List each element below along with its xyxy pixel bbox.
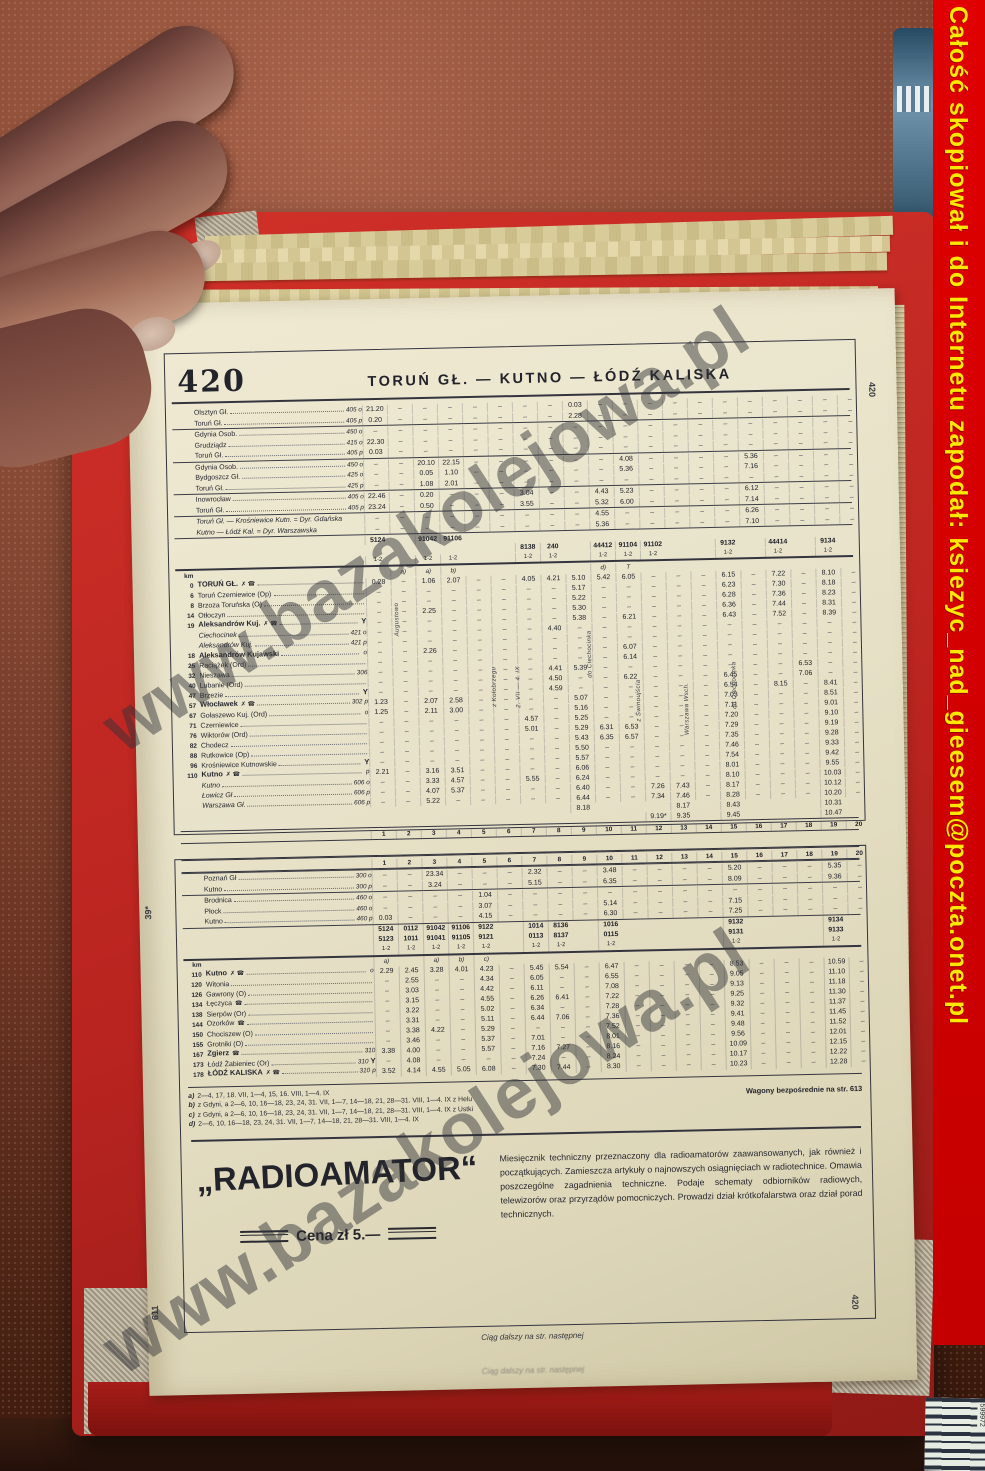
time-cell: – [497, 890, 522, 900]
time-cell: – [422, 892, 447, 902]
time-cell: – [687, 430, 712, 440]
time-cell: – [416, 616, 441, 626]
time-cell: – [391, 587, 416, 597]
time-cell: 7.43 [670, 781, 695, 791]
time-cell: – [692, 670, 717, 680]
time-cell: – [769, 739, 794, 749]
time-cell: – [545, 773, 570, 783]
station-name: Chociszew (O) [207, 1030, 253, 1040]
time-cell: – [697, 907, 722, 917]
time-cell: – [514, 511, 539, 521]
time-cell: – [424, 976, 449, 986]
time-cell: – [650, 1011, 675, 1021]
time-cell: – [575, 1032, 600, 1042]
station-name: Ciechocinek [199, 630, 237, 640]
time-cell: – [491, 605, 516, 615]
time-cell: 3.52 [376, 1067, 401, 1077]
time-cell: – [750, 1029, 775, 1039]
time-cell: 1-2 [373, 945, 398, 955]
time-cell: – [499, 984, 524, 994]
time-cell: – [838, 438, 863, 448]
time-cell: 9.33 [819, 738, 844, 748]
time-cell: – [744, 739, 769, 749]
time-cell: – [638, 442, 663, 452]
time-cell: – [576, 1062, 601, 1072]
time-cell: 7.01 [525, 1033, 550, 1043]
time-cell: – [537, 423, 562, 433]
time-cell: – [370, 797, 395, 807]
time-cell: – [545, 783, 570, 793]
station-cell [201, 839, 371, 843]
route-ref: 302 [352, 697, 363, 707]
time-cell: 0112 [398, 924, 423, 934]
time-cell: 9122 [473, 923, 498, 933]
time-cell: – [538, 456, 563, 466]
time-cell: – [372, 893, 397, 903]
time-cell: – [450, 1035, 475, 1045]
time-cell: – [439, 501, 464, 511]
time-cell: – [489, 511, 514, 521]
time-cell: – [499, 964, 524, 974]
time-cell: – [795, 778, 820, 788]
time-cell: – [839, 514, 864, 524]
time-cell: 10 [596, 824, 621, 834]
time-cell: – [522, 900, 547, 910]
time-cell: – [794, 728, 819, 738]
km-cell: 19 [176, 621, 196, 631]
station-name: Bydgoszcz Gł. [195, 473, 240, 483]
time-cell: – [374, 1007, 399, 1017]
time-cell: 7.36 [766, 589, 791, 599]
time-cell: 14 [696, 822, 721, 832]
time-cell: – [693, 680, 718, 690]
time-cell: – [787, 428, 812, 438]
time-cell: – [700, 1040, 725, 1050]
time-cell: – [747, 873, 772, 883]
time-cell: – [787, 418, 812, 428]
time-cell: – [712, 408, 737, 418]
time-cell: 6.24 [570, 773, 595, 783]
time-cell: – [591, 602, 616, 612]
time-cell: 8.23 [816, 588, 841, 598]
time-cell: 1-2 [398, 944, 423, 954]
time-cell: – [449, 975, 474, 985]
time-cell: 12.28 [826, 1057, 851, 1067]
time-cell: 4.55 [474, 995, 499, 1005]
time-cell: 3.04 [514, 489, 539, 499]
time-cell: – [587, 433, 612, 443]
time-cell: – [542, 644, 567, 654]
time-cell: – [519, 764, 544, 774]
time-cell: – [412, 426, 437, 436]
time-cell: – [649, 1001, 674, 1011]
time-cell: 5.36 [738, 451, 763, 461]
time-cell: – [375, 1017, 400, 1027]
time-cell: – [714, 495, 739, 505]
km-cell: 8 [176, 601, 196, 611]
time-cell: 5.30 [566, 603, 591, 613]
time-cell: – [542, 634, 567, 644]
time-cell: – [487, 402, 512, 412]
time-cell: – [516, 624, 541, 634]
time-cell: – [697, 874, 722, 884]
time-cell: – [666, 611, 691, 621]
station-name: Kutno [205, 917, 223, 927]
time-cell: – [675, 1020, 700, 1030]
time-cell: – [442, 646, 467, 656]
time-cell: – [669, 751, 694, 761]
time-cell: – [666, 581, 691, 591]
time-cell: – [612, 432, 637, 442]
time-cell: 6.28 [716, 590, 741, 600]
time-cell: – [817, 658, 842, 668]
time-cell: – [519, 744, 544, 754]
station-name: Grudziądz [195, 441, 227, 451]
time-cell: – [500, 1024, 525, 1034]
dotted-leader [240, 465, 345, 468]
time-cell: 0.28 [365, 577, 390, 587]
time-cell: 3 [421, 857, 446, 867]
time-cell: – [743, 689, 768, 699]
time-cell: 1.06 [415, 576, 440, 586]
time-cell: – [388, 480, 413, 490]
time-cell: – [742, 629, 767, 639]
time-cell: – [549, 973, 574, 983]
time-cell: – [444, 746, 469, 756]
time-cell: 6.14 [617, 652, 642, 662]
km-cell: 76 [179, 731, 199, 741]
time-cell: – [525, 1023, 550, 1033]
time-cell: – [843, 677, 868, 687]
ad-price-row: Cena zł 5.— [193, 1223, 483, 1246]
time-cell: – [771, 862, 796, 872]
time-cell: 91042 [415, 534, 440, 544]
time-cell: – [574, 992, 599, 1002]
time-cell: 3.16 [419, 766, 444, 776]
time-cell: 18 [796, 820, 821, 830]
time-cell: – [800, 1008, 825, 1018]
time-cell: – [850, 1007, 875, 1017]
time-cell: – [625, 1021, 650, 1031]
time-cell: – [699, 970, 724, 980]
barcode-label: 599972 [924, 1397, 985, 1471]
time-cell: 12 [646, 852, 671, 862]
time-cell: 7.16 [525, 1043, 550, 1053]
time-cell: – [464, 512, 489, 522]
time-cell: – [516, 584, 541, 594]
time-cell: 5.07 [568, 693, 593, 703]
time-cell: – [388, 447, 413, 457]
time-cell: – [516, 604, 541, 614]
dotted-leader [225, 454, 345, 458]
time-cell: – [470, 775, 495, 785]
time-cell: 1.25 [368, 707, 393, 717]
time-cell: – [392, 667, 417, 677]
time-cell: – [550, 1053, 575, 1063]
time-cell: – [547, 867, 572, 877]
ad-price: Cena zł 5.— [296, 1226, 381, 1245]
time-cell: – [499, 1004, 524, 1014]
time-cell: 1-2 [723, 937, 748, 947]
time-cell: 7.30 [766, 579, 791, 589]
time-cell: – [788, 450, 813, 460]
time-cell: – [394, 747, 419, 757]
time-cell: – [692, 640, 717, 650]
time-cell: – [822, 904, 847, 914]
time-cell: – [437, 425, 462, 435]
time-cell: 9.32 [724, 999, 749, 1009]
time-cell: – [641, 591, 666, 601]
time-cell: 7.22 [765, 569, 790, 579]
time-cell: – [622, 865, 647, 875]
time-cell: – [519, 734, 544, 744]
time-cell: – [543, 714, 568, 724]
time-cell: – [593, 692, 618, 702]
time-cell: – [775, 1028, 800, 1038]
time-cell: – [419, 756, 444, 766]
stations-block: 110Kutno✗ ☎o2.292.453.284.014.23–5.455.5… [184, 956, 864, 1080]
time-cell: – [462, 425, 487, 435]
time-cell: – [847, 893, 872, 903]
time-cell: – [625, 1011, 650, 1021]
time-cell: – [762, 407, 787, 417]
time-cell: 6 [496, 856, 521, 866]
time-cell: – [367, 667, 392, 677]
time-cell: T [615, 562, 640, 572]
time-cell: 5.20 [722, 863, 747, 873]
time-cell: – [749, 969, 774, 979]
time-cell: 20 [846, 848, 871, 858]
time-cell: – [774, 978, 799, 988]
dotted-leader [225, 920, 355, 924]
time-cell: 2.07 [418, 696, 443, 706]
time-cell: – [814, 515, 839, 525]
time-cell: – [789, 483, 814, 493]
time-cell: – [775, 1048, 800, 1058]
time-cell: – [622, 908, 647, 918]
vertical-note: Augustowo [393, 603, 401, 637]
time-cell: – [766, 619, 791, 629]
time-cell: 6.07 [617, 642, 642, 652]
time-cell: 4 [446, 828, 471, 838]
time-cell: – [645, 771, 670, 781]
time-cell: – [397, 881, 422, 891]
time-cell: – [417, 666, 442, 676]
time-cell: – [442, 636, 467, 646]
time-cell: – [737, 397, 762, 407]
time-cell: – [692, 660, 717, 670]
time-cell: – [749, 989, 774, 999]
time-cell: – [547, 877, 572, 887]
time-cell: – [669, 761, 694, 771]
dotted-leader [231, 743, 367, 747]
time-cell: 4.41 [542, 664, 567, 674]
time-cell: – [850, 1027, 875, 1037]
time-cell: 5 [471, 827, 496, 837]
time-cell: – [837, 427, 862, 437]
time-cell: – [772, 873, 797, 883]
station-name: Aleksandrów Kuj. [198, 618, 260, 629]
time-cell: – [663, 474, 688, 484]
time-cell: – [501, 1064, 526, 1074]
time-cell: – [450, 1045, 475, 1055]
time-cell: – [699, 1000, 724, 1010]
time-cell: 7.15 [722, 896, 747, 906]
station-name: Brodnica [204, 896, 232, 906]
time-cell: – [822, 894, 847, 904]
time-cell: – [613, 442, 638, 452]
time-cell: – [714, 484, 739, 494]
time-cell: – [812, 395, 837, 405]
time-cell: – [541, 584, 566, 594]
time-cell: 11.52 [825, 1017, 850, 1027]
time-cell: 6.08 [476, 1064, 501, 1074]
time-cell: – [595, 782, 620, 792]
time-cell: – [516, 614, 541, 624]
time-cell: 9133 [823, 925, 848, 935]
time-cell: – [437, 403, 462, 413]
time-cell: – [762, 418, 787, 428]
time-cell: – [389, 502, 414, 512]
station-symbols: ✗ ☎ [230, 970, 244, 980]
time-cell: – [838, 460, 863, 470]
time-cell: 5.57 [569, 753, 594, 763]
time-cell: – [741, 619, 766, 629]
route-ref: 405 o [346, 405, 362, 415]
time-cell: – [366, 617, 391, 627]
time-cell: – [817, 638, 842, 648]
time-cell: – [489, 522, 514, 532]
time-cell: – [425, 1036, 450, 1046]
time-cell: – [424, 1006, 449, 1016]
time-cell: – [813, 471, 838, 481]
dotted-leader [281, 653, 359, 656]
time-cell: 2.26 [417, 646, 442, 656]
time-cell: – [644, 741, 669, 751]
stations-block: 0TORUŃ GŁ.✗ ☎0.28–1.062.07––4.054.215.10… [175, 567, 858, 831]
station-name: Toruń Gł. [194, 419, 223, 429]
time-cell: – [772, 895, 797, 905]
time-cell: – [363, 480, 388, 490]
time-cell: – [747, 885, 772, 895]
banner-text: Całość skopiował i do Internetu zapodał:… [933, 0, 972, 1025]
time-cell: 17 [771, 850, 796, 860]
time-cell: – [418, 716, 443, 726]
time-cell: – [592, 642, 617, 652]
route-ref: 421 o [350, 628, 366, 638]
time-cell: 6.30 [597, 909, 622, 919]
time-cell: – [588, 476, 613, 486]
time-cell: – [441, 596, 466, 606]
time-cell: 9132 [723, 917, 748, 927]
time-cell: – [664, 507, 689, 517]
time-cell: – [644, 751, 669, 761]
time-cell: – [770, 779, 795, 789]
time-cell: 23.34 [422, 870, 447, 880]
time-cell: – [647, 897, 672, 907]
time-cell: – [374, 997, 399, 1007]
time-cell: – [839, 482, 864, 492]
time-cell: 3.15 [399, 996, 424, 1006]
time-cell: – [614, 519, 639, 529]
station-name: Toruń Gł. [195, 451, 224, 461]
continuation-note-blurred: Ciąg dalszy na str. następnej [149, 1358, 917, 1383]
time-cell: – [497, 911, 522, 921]
km-cell: km [175, 571, 195, 581]
time-cell: – [516, 594, 541, 604]
station-symbols: ✗ ☎ [263, 620, 277, 630]
time-cell: – [591, 622, 616, 632]
time-cell: – [463, 446, 488, 456]
time-cell: 6.57 [619, 732, 644, 742]
time-cell: 20.10 [413, 458, 438, 468]
time-cell: – [514, 521, 539, 531]
time-cell: – [369, 727, 394, 737]
vertical-note: z Świnoujścia [635, 679, 643, 721]
time-cell: – [520, 784, 545, 794]
time-cell: – [813, 450, 838, 460]
dotted-leader [273, 593, 363, 596]
time-cell: – [663, 453, 688, 463]
page-number-611: 611 [150, 1305, 160, 1320]
time-cell: 4.00 [400, 1046, 425, 1056]
time-cell: – [369, 747, 394, 757]
time-cell: – [797, 894, 822, 904]
time-cell: – [591, 582, 616, 592]
time-cell: – [693, 700, 718, 710]
time-cell: – [444, 756, 469, 766]
time-cell: 12 [646, 823, 671, 833]
time-cell: – [791, 578, 816, 588]
time-cell: – [537, 434, 562, 444]
time-cell: 10 [596, 853, 621, 863]
time-cell: 2.01 [438, 479, 463, 489]
time-cell: – [616, 592, 641, 602]
time-cell: – [849, 987, 874, 997]
time-cell: 1-2 [473, 943, 498, 953]
time-cell: – [562, 433, 587, 443]
time-cell: – [797, 905, 822, 915]
time-cell: – [798, 958, 823, 968]
time-cell: – [794, 748, 819, 758]
background-object [893, 28, 937, 218]
time-cell: – [749, 979, 774, 989]
time-cell: – [374, 977, 399, 987]
time-cell: – [643, 711, 668, 721]
time-cell: – [412, 436, 437, 446]
time-cell: 5.42 [590, 572, 615, 582]
time-cell: 1 [371, 858, 396, 868]
time-cell: – [575, 1022, 600, 1032]
time-cell: – [462, 413, 487, 423]
dotted-leader [257, 582, 363, 585]
time-cell: – [494, 745, 519, 755]
time-cell: – [795, 768, 820, 778]
time-cell: – [469, 735, 494, 745]
time-cell: – [662, 398, 687, 408]
time-cell: 7.14 [739, 494, 764, 504]
time-cell: 9.13 [724, 979, 749, 989]
time-cell: 6.11 [524, 983, 549, 993]
time-cell: – [800, 1018, 825, 1028]
time-cell: – [793, 678, 818, 688]
dotted-leader [224, 909, 355, 913]
time-cell: – [676, 1060, 701, 1070]
time-cell: – [374, 987, 399, 997]
time-cell: 6.23 [716, 580, 741, 590]
time-cell: – [742, 639, 767, 649]
time-cell: – [817, 628, 842, 638]
